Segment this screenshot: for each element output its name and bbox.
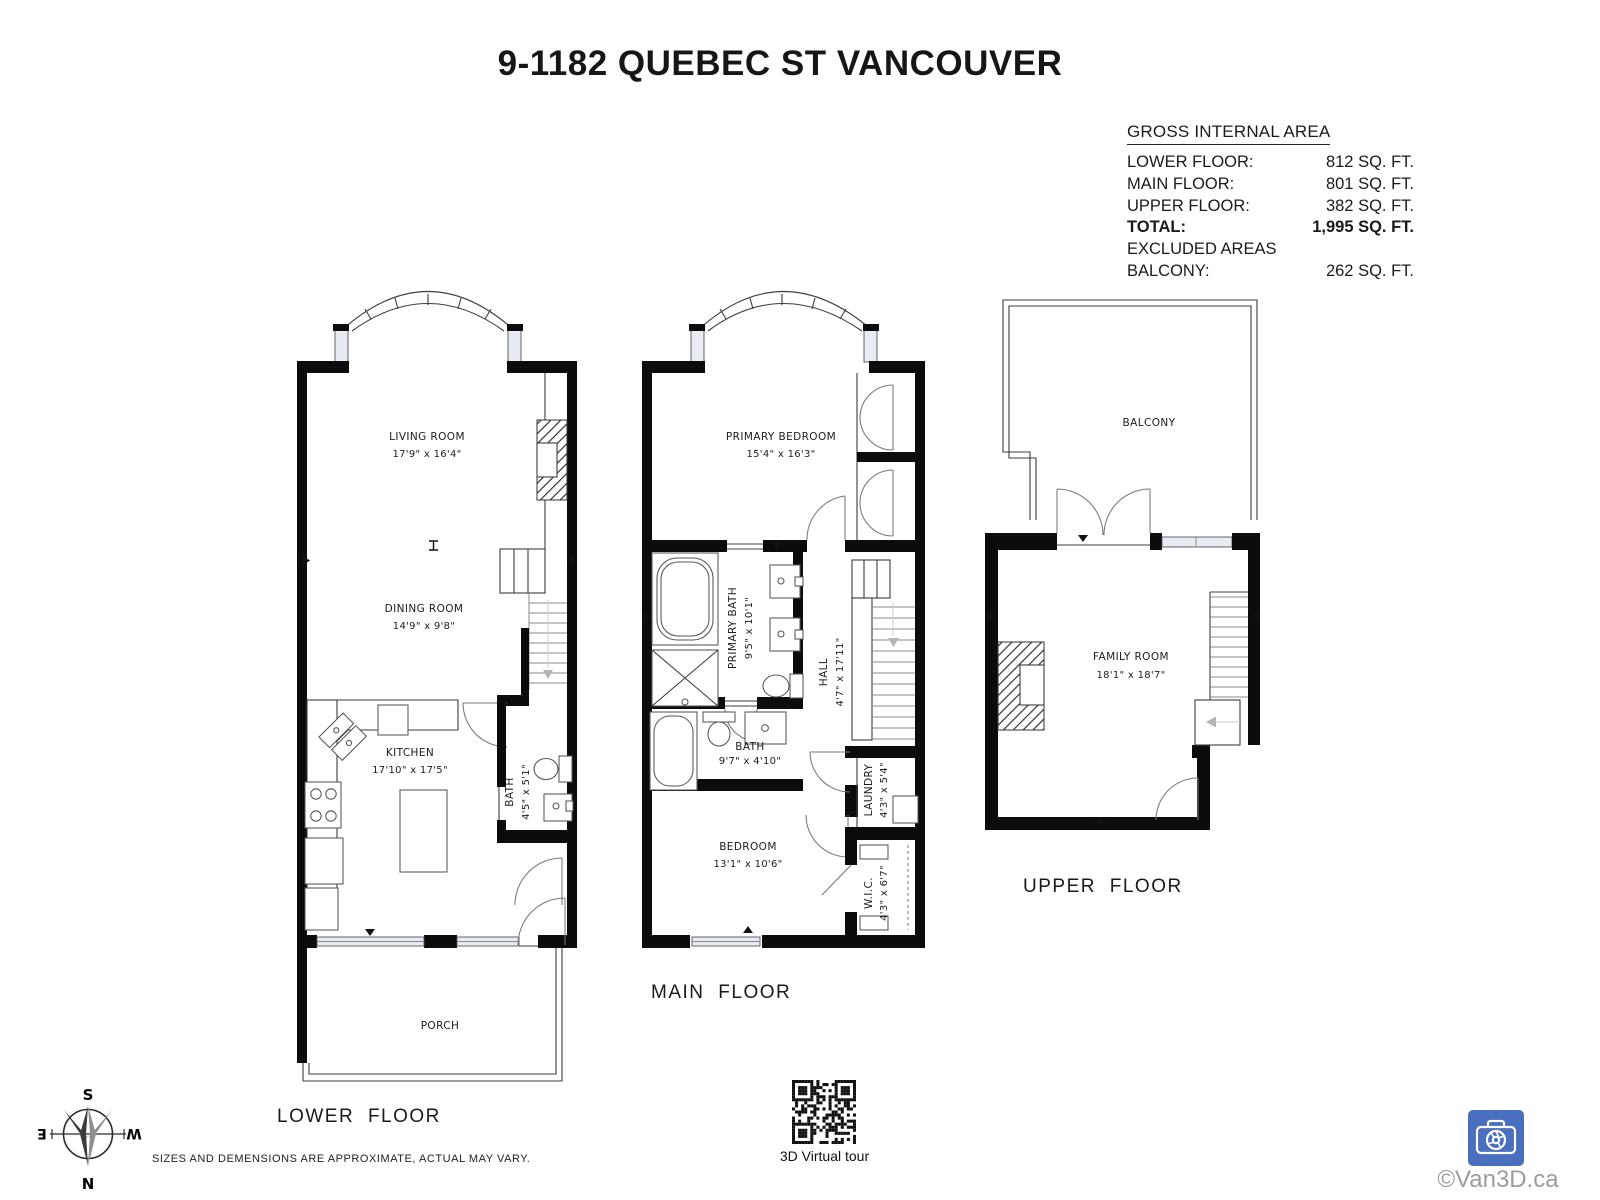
balcony-outline (1003, 300, 1257, 520)
fridge (305, 838, 343, 884)
bath-label: BATH (735, 741, 764, 753)
family-room-dims: 18'1" x 18'7" (1096, 670, 1165, 681)
page-title: 9-1182 QUEBEC ST VANCOUVER (0, 44, 1560, 84)
washer (893, 796, 918, 823)
toilet-tank (703, 712, 735, 722)
bath-fixtures (650, 712, 786, 790)
bay-window (333, 292, 523, 363)
staircase (1195, 592, 1248, 745)
wic-label: W.I.C. (863, 877, 875, 909)
disclaimer-text: SIZES AND DEMENSIONS ARE APPROXIMATE, AC… (152, 1153, 530, 1165)
porch-outline (297, 948, 562, 1081)
lower-floor-plan: LIVING ROOM 17'9" x 16'4" DINING ROOM 14… (283, 283, 587, 1110)
qr-code (792, 1080, 856, 1144)
laundry-label: LAUNDRY (863, 763, 875, 816)
laundry-dims: 4'3" x 5'4" (879, 762, 890, 818)
bathtub (654, 716, 693, 786)
area-row-excluded: EXCLUDED AREAS (1127, 239, 1414, 261)
kitchen-fixtures (305, 700, 458, 930)
cabinet (305, 888, 338, 930)
van3d-logo (1468, 1110, 1524, 1166)
wic-dims: 4'3" x 6'7" (879, 865, 890, 921)
area-table-heading: GROSS INTERNAL AREA (1127, 122, 1330, 145)
bay-window (689, 292, 879, 363)
lower-bath-label: BATH (504, 777, 516, 806)
upper-door (1156, 778, 1198, 820)
kitchen-dims: 17'10" x 17'5" (372, 765, 448, 776)
area-row-balcony: BALCONY: 262 SQ. FT. (1127, 261, 1414, 283)
kitchen-label: KITCHEN (386, 747, 434, 759)
watermark-text: ©Van3D.ca (1428, 1166, 1568, 1194)
island (400, 790, 447, 872)
staircase (500, 549, 567, 706)
floor-plan-page: 9-1182 QUEBEC ST VANCOUVER GROSS INTERNA… (0, 0, 1600, 1200)
toilet-tank (559, 756, 572, 782)
primary-bedroom-dims: 15'4" x 16'3" (746, 449, 815, 460)
bedroom-dims: 13'1" x 10'6" (713, 859, 782, 870)
hall-label: HALL (818, 658, 830, 686)
living-room-dims: 17'9" x 16'4" (392, 449, 461, 460)
toilet-bowl (763, 675, 789, 697)
fireplace (537, 373, 567, 549)
hall-dims: 4'7" x 17'11" (835, 637, 846, 706)
toilet-bowl (534, 759, 558, 780)
lower-bath (497, 695, 577, 843)
fireplace (998, 642, 1044, 730)
section-marker (429, 541, 438, 550)
compass-rose: S N E W (28, 1075, 148, 1193)
upper-floor-caption: UPPER FLOOR (1023, 876, 1183, 898)
area-row-upper: UPPER FLOOR: 382 SQ. FT. (1127, 196, 1414, 218)
porch-label: PORCH (421, 1020, 460, 1032)
area-row-lower: LOWER FLOOR: 812 SQ. FT. (1127, 152, 1414, 174)
primary-bath-label: PRIMARY BATH (727, 587, 739, 669)
main-floor-caption: MAIN FLOOR (651, 982, 791, 1004)
dining-room-label: DINING ROOM (385, 603, 464, 615)
closets (857, 373, 925, 540)
lower-floor-caption: LOWER FLOOR (277, 1106, 441, 1128)
gross-internal-area-table: GROSS INTERNAL AREA LOWER FLOOR: 812 SQ.… (1127, 122, 1414, 283)
family-room-label: FAMILY ROOM (1093, 651, 1169, 663)
balcony-label: BALCONY (1123, 417, 1176, 429)
toilet-tank (790, 674, 803, 698)
dining-room-dims: 14'9" x 9'8" (393, 621, 455, 632)
primary-bedroom-label: PRIMARY BEDROOM (726, 431, 836, 443)
lower-bath-dims: 4'5" x 5'1" (521, 764, 532, 820)
stove (305, 782, 341, 828)
compass-n: N (82, 1175, 95, 1193)
living-room-label: LIVING ROOM (389, 431, 465, 443)
bedroom-label: BEDROOM (719, 841, 777, 853)
primary-bath-dims: 9'5" x 10'1" (744, 597, 755, 659)
area-row-main: MAIN FLOOR: 801 SQ. FT. (1127, 174, 1414, 196)
compass-w: W (126, 1125, 141, 1141)
toilet-bowl (708, 722, 730, 746)
kitchen-table (378, 705, 408, 735)
upper-floor-plan: BALCONY FAMILY ROOM 18'1" x 18'7" (978, 288, 1270, 836)
bath-dims: 9'7" x 4'10" (719, 756, 781, 767)
staircase (852, 560, 915, 740)
compass-s: S (83, 1086, 94, 1104)
area-row-total: TOTAL: 1,995 SQ. FT. (1127, 217, 1414, 239)
back-doors (515, 858, 565, 945)
kitchen-door (463, 695, 528, 747)
qr-caption: 3D Virtual tour (757, 1148, 892, 1164)
top-wall (985, 489, 1260, 550)
compass-e: E (37, 1125, 47, 1141)
main-floor-plan: PRIMARY BEDROOM 15'4" x 16'3" PRIMARY BA… (635, 283, 935, 953)
